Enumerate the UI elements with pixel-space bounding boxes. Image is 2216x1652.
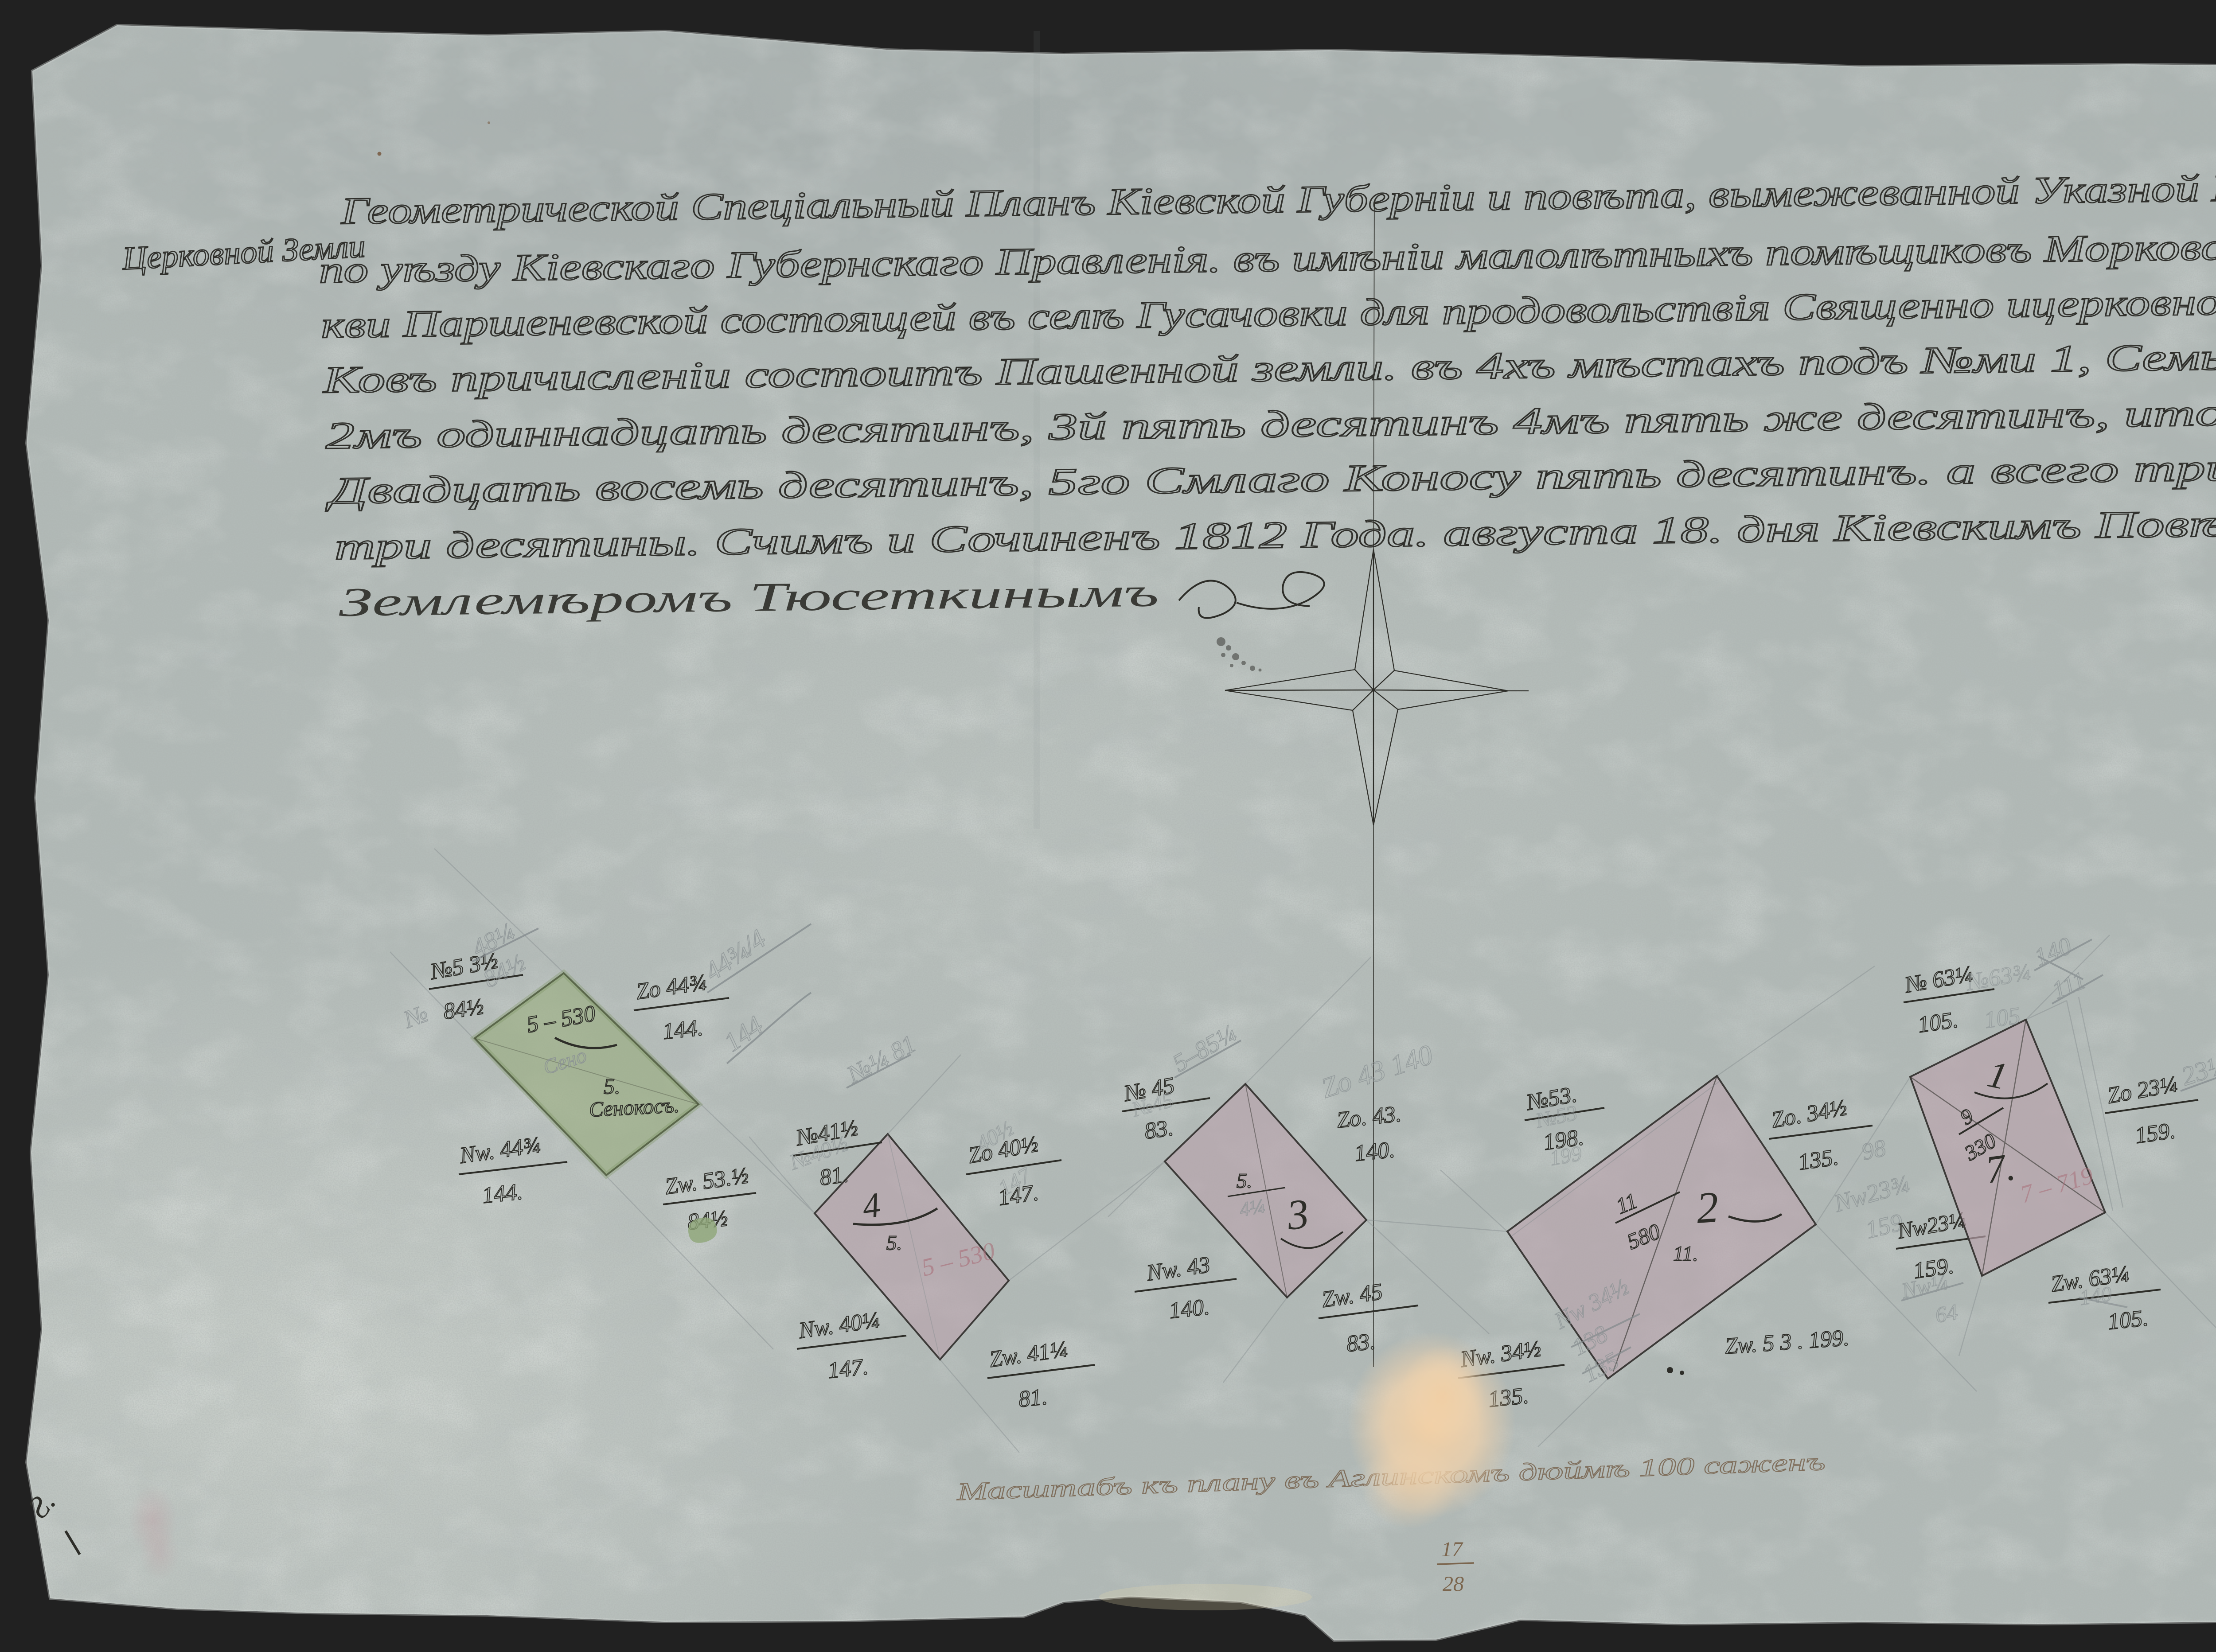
svg-text:81.: 81. — [818, 1161, 850, 1190]
svg-text:2: 2 — [1695, 1182, 1721, 1233]
svg-text:83.: 83. — [1345, 1329, 1377, 1356]
svg-text:4¼: 4¼ — [1238, 1195, 1266, 1221]
svg-text:11.: 11. — [1673, 1242, 1698, 1266]
svg-text:140.: 140. — [1168, 1294, 1210, 1324]
svg-text:147.: 147. — [827, 1354, 869, 1383]
svg-text:144.: 144. — [661, 1015, 704, 1044]
svg-text:5.: 5. — [1237, 1169, 1252, 1192]
svg-text:83.: 83. — [1143, 1115, 1175, 1144]
svg-text:105: 105 — [1982, 1002, 2022, 1033]
svg-text:28: 28 — [1443, 1572, 1464, 1596]
svg-text:81.: 81. — [1017, 1384, 1049, 1412]
svg-text:Сенокосъ.: Сенокосъ. — [589, 1093, 680, 1122]
svg-text:144.: 144. — [481, 1179, 523, 1208]
svg-text:5.: 5. — [886, 1231, 902, 1255]
svg-text:105.: 105. — [2107, 1305, 2149, 1335]
svg-text:7.: 7. — [1983, 1145, 2018, 1192]
svg-text:5.: 5. — [604, 1074, 620, 1099]
svg-text:17: 17 — [1441, 1538, 1463, 1561]
svg-text:64: 64 — [1933, 1299, 1959, 1328]
svg-text:140.: 140. — [1353, 1137, 1396, 1166]
svg-text:140: 140 — [2078, 1282, 2113, 1310]
